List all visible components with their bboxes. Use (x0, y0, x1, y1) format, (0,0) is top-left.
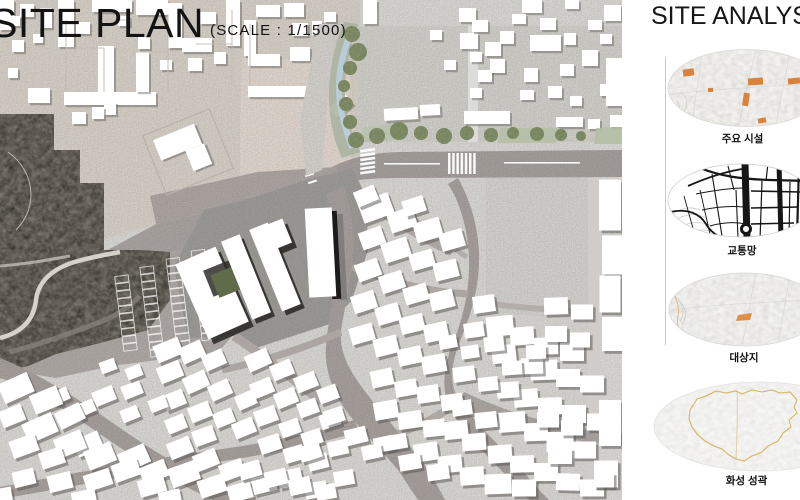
svg-text:SITE ANALYSIS: SITE ANALYSIS (651, 2, 800, 30)
svg-text:화성 성곽: 화성 성곽 (726, 474, 768, 487)
svg-text:(SCALE : 1/1500): (SCALE : 1/1500) (210, 22, 347, 39)
svg-text:교통망: 교통망 (728, 244, 757, 257)
svg-text:SITE PLAN: SITE PLAN (0, 0, 204, 46)
svg-text:주요 시설: 주요 시설 (722, 132, 764, 145)
svg-text:대상지: 대상지 (730, 351, 759, 364)
